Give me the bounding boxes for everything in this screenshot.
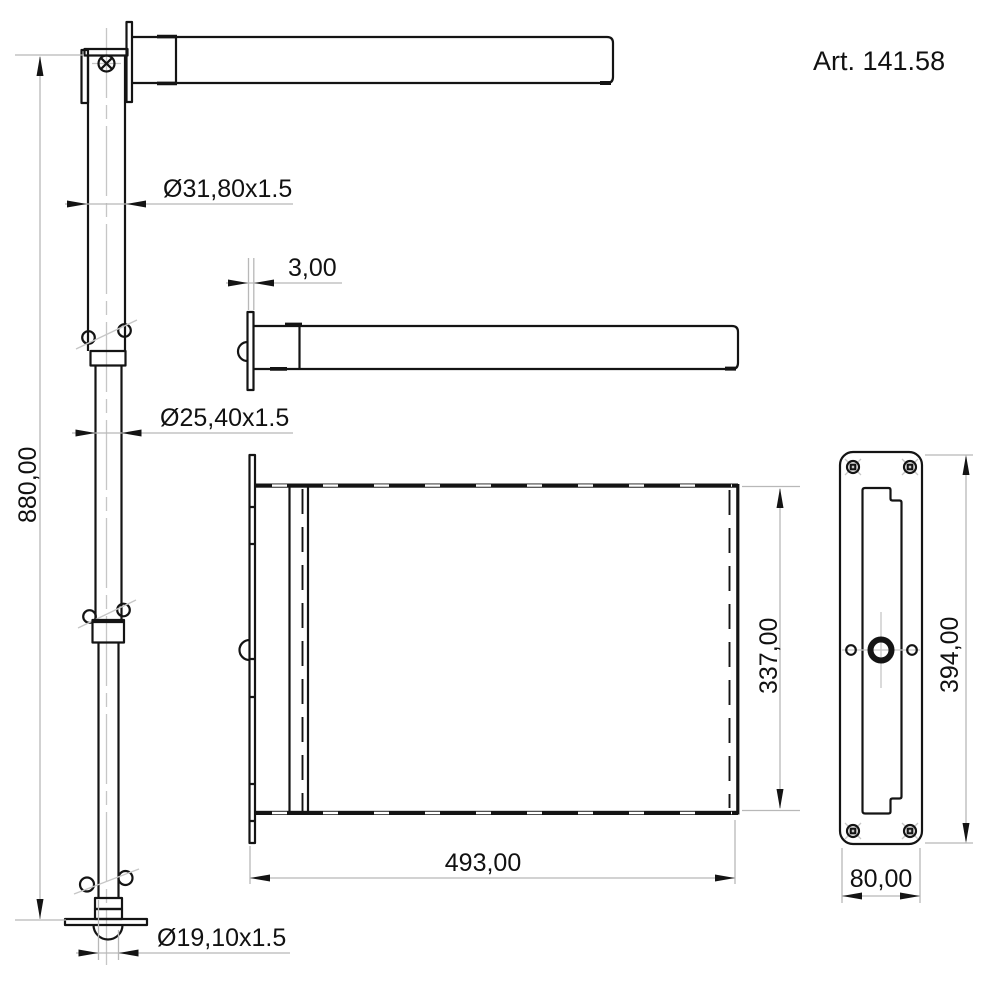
dim-label-panel-height: 337,00 — [755, 618, 783, 694]
flange-boss — [238, 342, 248, 361]
arm-flange-edge — [127, 22, 133, 102]
upper-collar — [91, 351, 126, 366]
dim-middle-tube: Ø25,40x1.5 — [72, 404, 293, 437]
dim-flange-thickness: 3,00 — [226, 254, 342, 310]
wall-plate-view: 394,00 80,00 — [840, 452, 973, 903]
lower-tube — [99, 643, 119, 899]
dim-label-middle-tube: Ø25,40x1.5 — [160, 404, 289, 432]
dim-pole-height: 880,00 — [14, 55, 84, 920]
dim-label-upper-tube: Ø31,80x1.5 — [163, 175, 292, 203]
dim-label-panel-width: 493,00 — [445, 849, 521, 877]
arm-weld-ticks — [157, 35, 611, 85]
dim-plate-width: 80,00 — [842, 848, 920, 903]
wing-clamp-ear-icon — [119, 871, 133, 885]
technical-drawing-page: 880,00 Ø31,80x1.5 Ø25,40x1.5 Ø19,10x1.5 — [0, 0, 1000, 1000]
flange-boss — [240, 640, 250, 660]
dim-upper-tube: Ø31,80x1.5 — [65, 175, 293, 208]
dim-label-flange-thickness: 3,00 — [288, 254, 337, 282]
arm-tube — [254, 326, 739, 369]
middle-tube — [96, 366, 122, 620]
dim-panel-height: 337,00 — [742, 487, 800, 811]
wall-flange-edge — [248, 312, 254, 390]
dim-plate-height: 394,00 — [925, 455, 973, 843]
dim-label-plate-height: 394,00 — [936, 617, 964, 693]
arm-weld-ticks — [270, 323, 736, 371]
arm-detail-view: 3,00 — [226, 254, 738, 390]
arm-tube-edge-on — [290, 488, 309, 813]
article-number: Art. 141.58 — [813, 46, 945, 76]
arm-tube — [132, 37, 613, 83]
dim-panel-width: 493,00 — [250, 820, 735, 884]
dim-label-plate-width: 80,00 — [850, 865, 913, 893]
dim-label-pole-height: 880,00 — [14, 447, 42, 523]
dim-label-lower-tube: Ø19,10x1.5 — [157, 924, 286, 952]
middle-collar — [93, 620, 125, 643]
drawing-canvas: 880,00 Ø31,80x1.5 Ø25,40x1.5 Ø19,10x1.5 — [0, 0, 1000, 1000]
panel-front-view: 337,00 493,00 — [240, 455, 801, 884]
side-view: 880,00 Ø31,80x1.5 Ø25,40x1.5 Ø19,10x1.5 — [14, 22, 613, 965]
